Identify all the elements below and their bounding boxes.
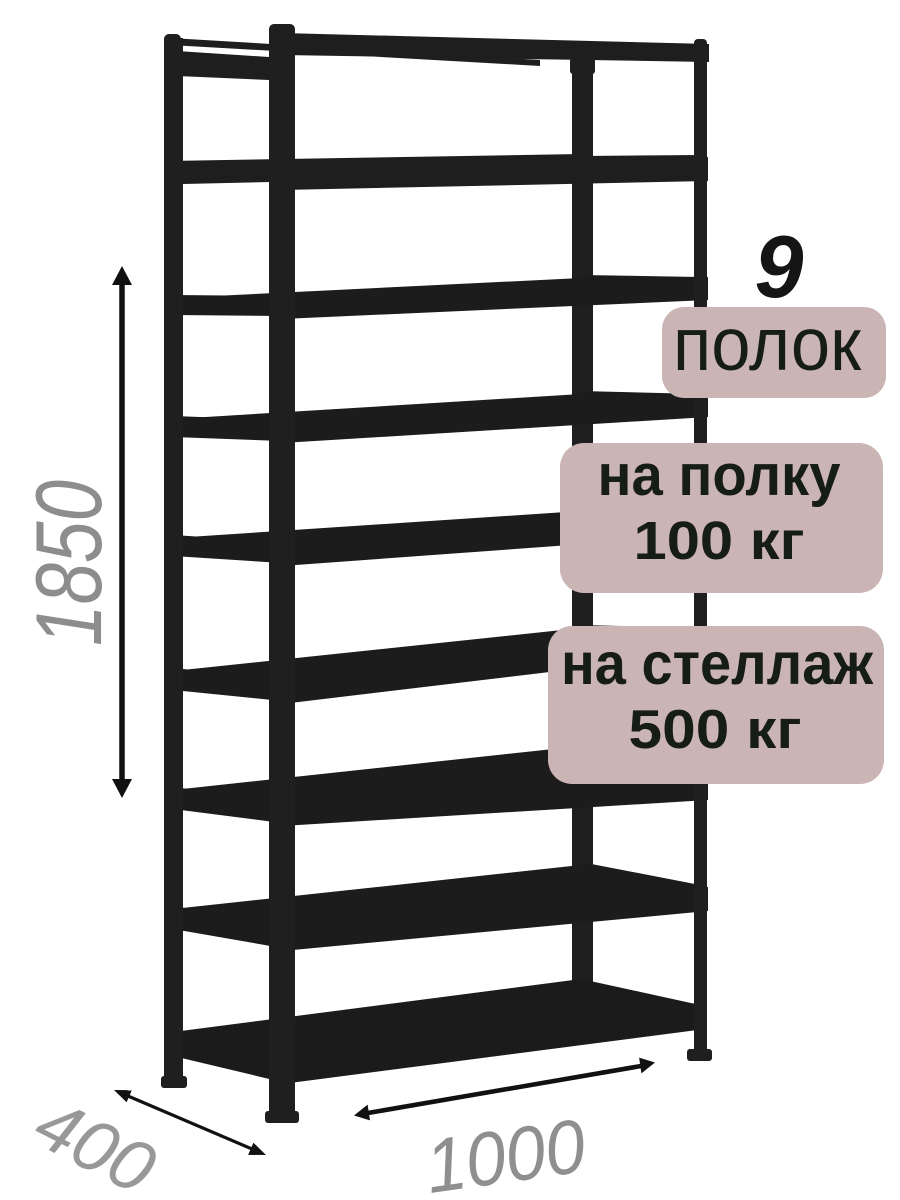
svg-text:на стеллаж: на стеллаж [561,631,874,697]
svg-text:на полку: на полку [598,443,841,508]
svg-text:1850: 1850 [16,480,121,646]
svg-text:100 кг: 100 кг [634,511,805,571]
svg-text:полок: полок [673,302,862,386]
svg-text:500 кг: 500 кг [629,698,802,760]
